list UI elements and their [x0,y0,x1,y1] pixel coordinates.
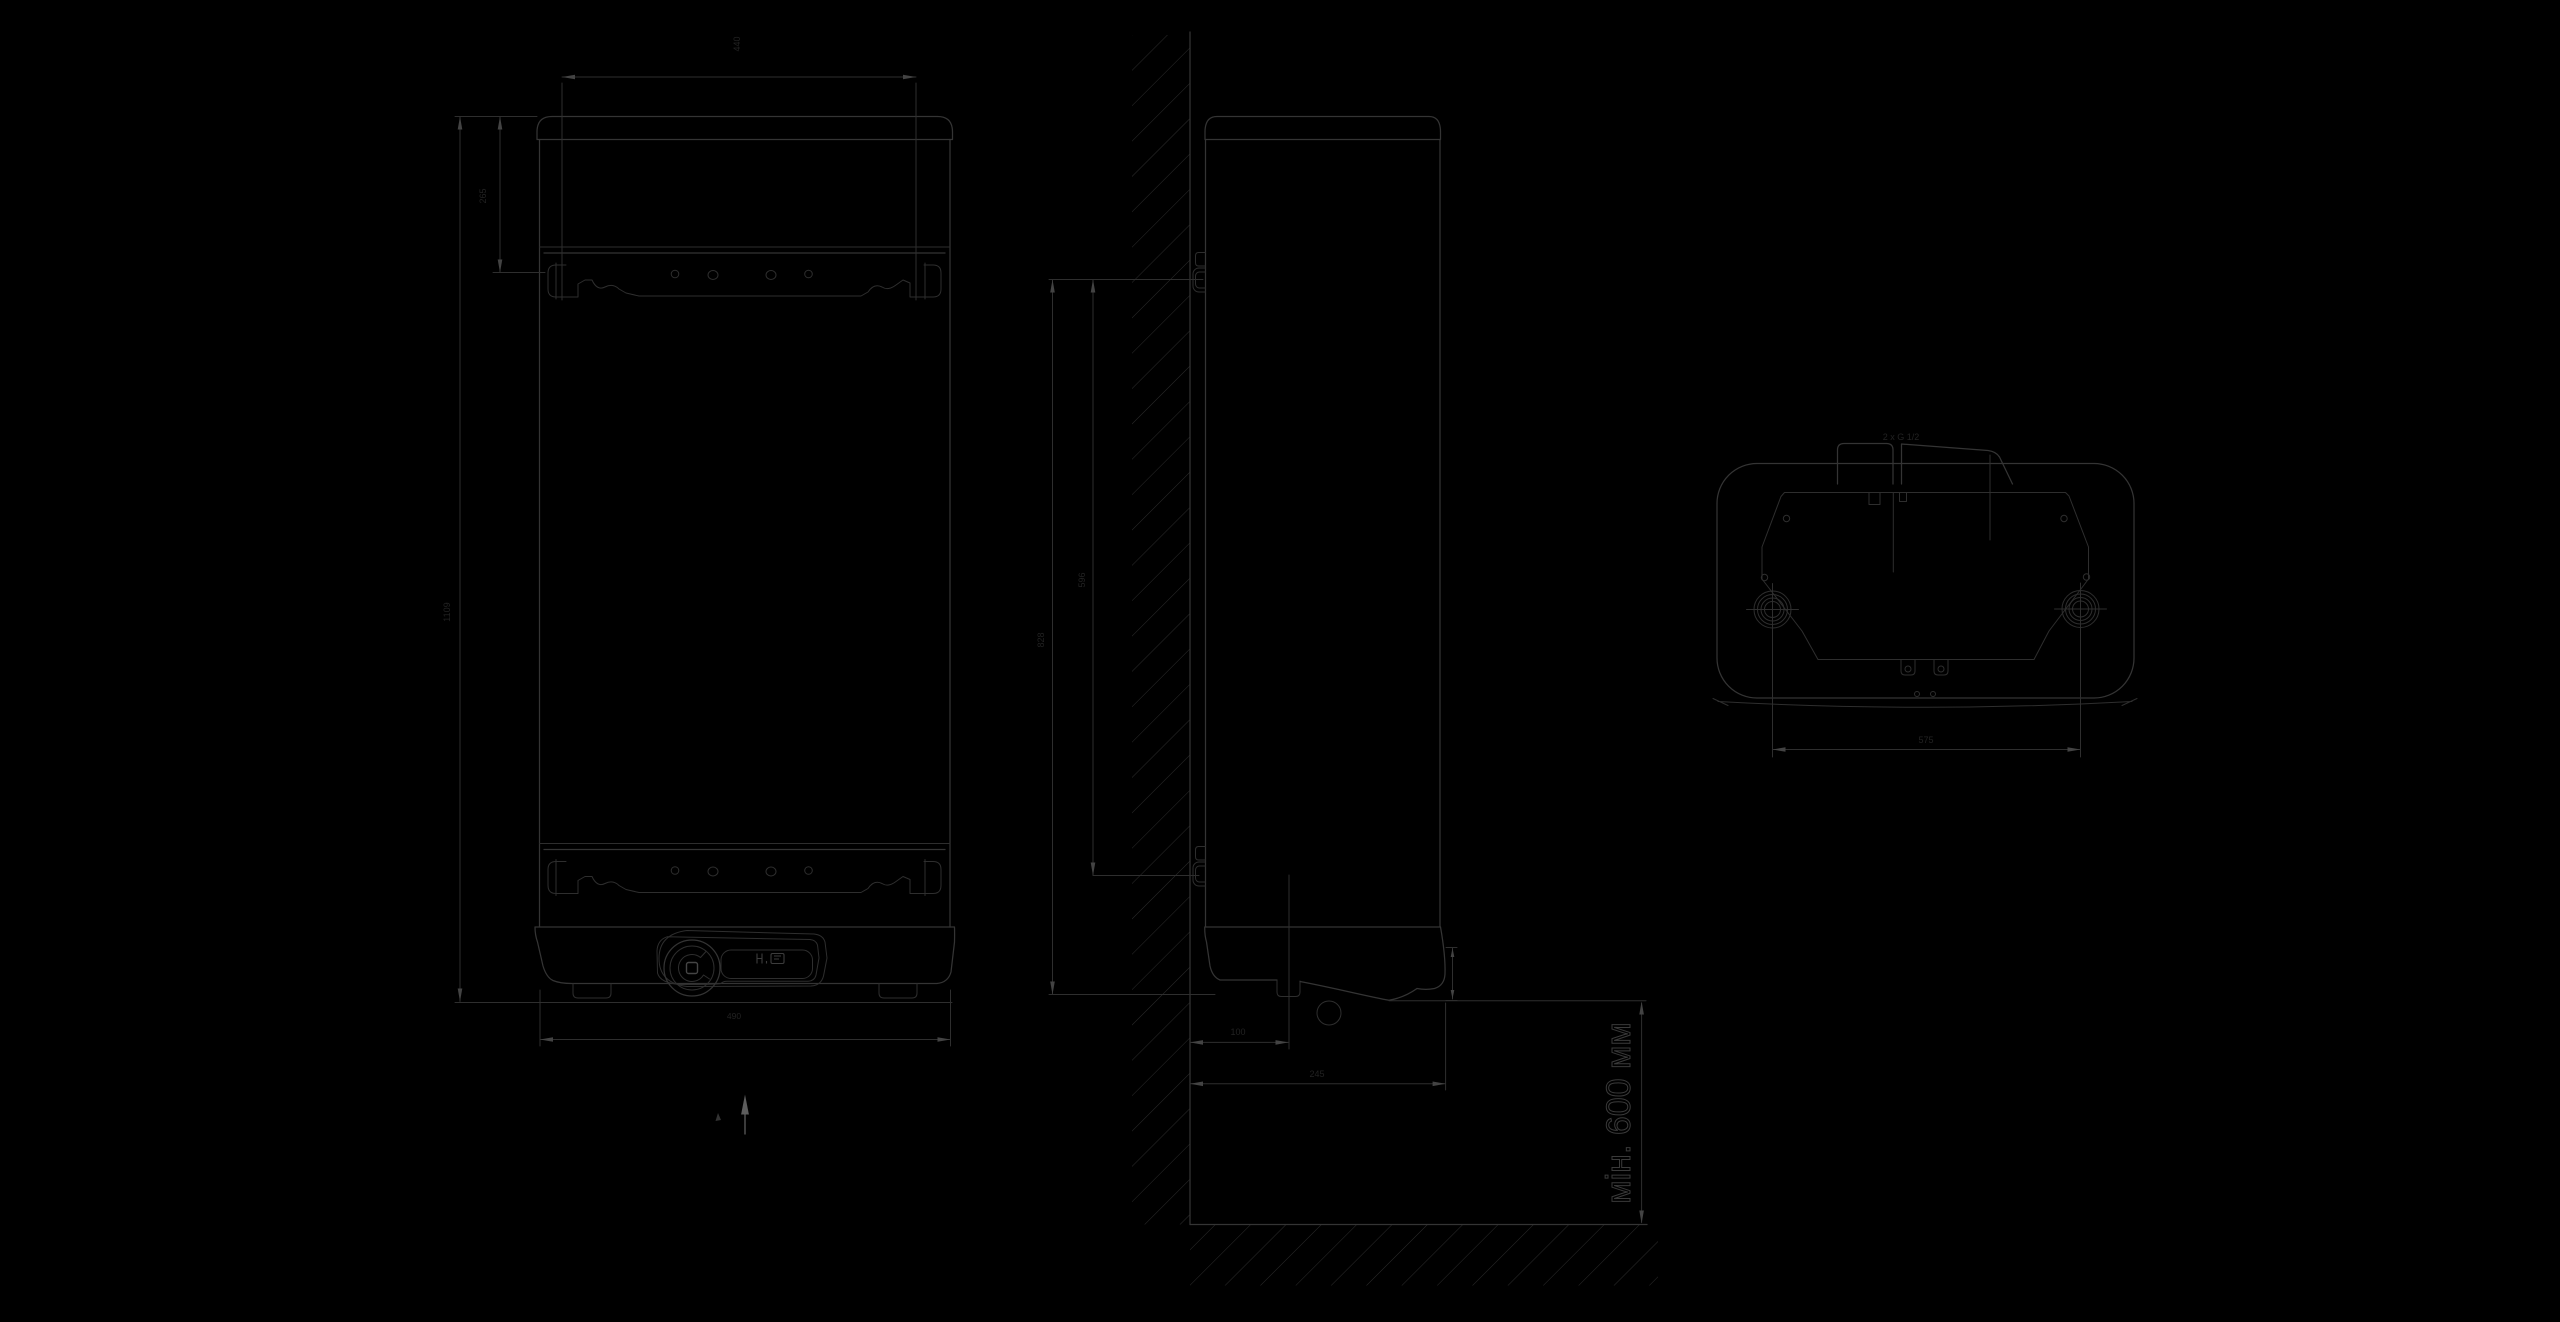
svg-text:490: 490 [727,1011,741,1021]
svg-text:440: 440 [732,36,742,51]
svg-text:мін. 600 мм: мін. 600 мм [1600,1022,1638,1204]
svg-text:100: 100 [1230,1027,1245,1037]
svg-text:245: 245 [1309,1069,1324,1079]
svg-text:828: 828 [1036,632,1046,647]
svg-text:575: 575 [1918,735,1933,745]
svg-text:596: 596 [1077,572,1087,587]
svg-text:2 x G 1/2: 2 x G 1/2 [1883,432,1920,442]
svg-text:265: 265 [478,188,488,203]
svg-text:1109: 1109 [442,602,452,621]
